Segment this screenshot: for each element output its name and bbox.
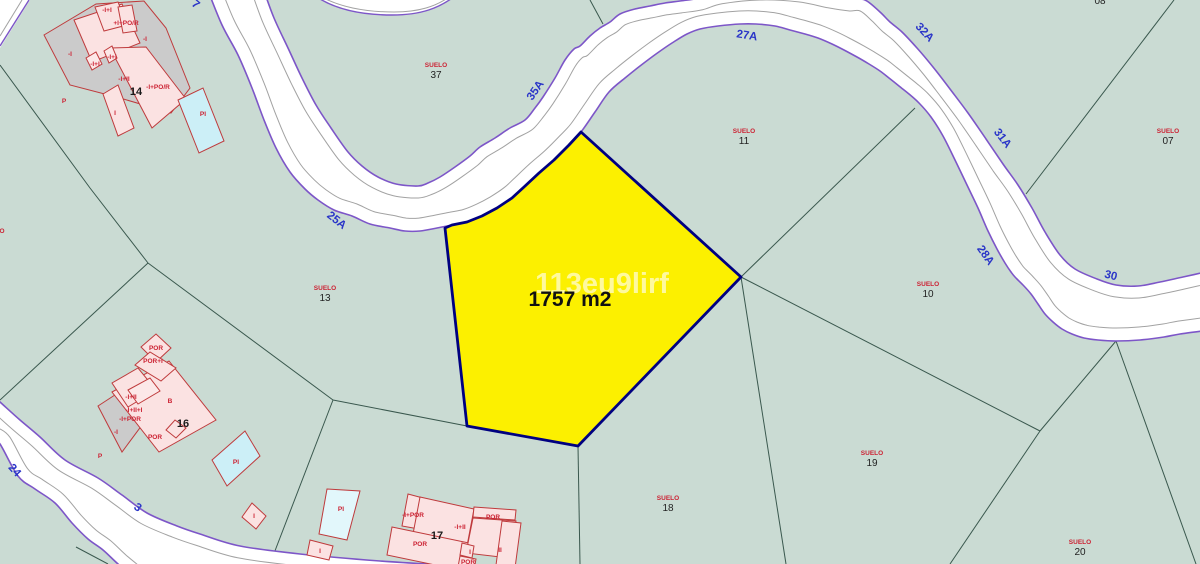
svg-text:1757 m2: 1757 m2 bbox=[529, 288, 612, 311]
svg-text:PI: PI bbox=[200, 111, 206, 118]
svg-text:-I+I: -I+I bbox=[102, 7, 112, 14]
svg-text:SUELO: SUELO bbox=[314, 285, 336, 292]
svg-text:POR: POR bbox=[461, 559, 475, 564]
svg-text:SUELO: SUELO bbox=[1157, 128, 1179, 135]
svg-text:POR: POR bbox=[486, 514, 500, 521]
svg-text:17: 17 bbox=[431, 530, 443, 542]
svg-text:SUELO: SUELO bbox=[861, 450, 883, 457]
svg-text:-I+I: -I+I bbox=[107, 54, 117, 61]
svg-text:POR: POR bbox=[149, 345, 163, 352]
svg-text:20: 20 bbox=[1074, 547, 1086, 558]
svg-text:-I: -I bbox=[143, 36, 147, 43]
svg-text:II: II bbox=[498, 547, 502, 554]
svg-text:37: 37 bbox=[430, 70, 442, 81]
svg-text:-I+II+I: -I+II+I bbox=[126, 407, 143, 414]
svg-text:I: I bbox=[114, 110, 116, 117]
svg-text:19: 19 bbox=[866, 458, 878, 469]
svg-text:PI: PI bbox=[338, 506, 344, 513]
svg-text:16: 16 bbox=[177, 418, 189, 430]
svg-text:08: 08 bbox=[1094, 0, 1106, 7]
svg-text:B: B bbox=[168, 398, 173, 405]
svg-text:P: P bbox=[62, 98, 67, 105]
svg-text:SUELO: SUELO bbox=[657, 495, 679, 502]
svg-text:07: 07 bbox=[1162, 136, 1174, 147]
svg-text:13: 13 bbox=[319, 293, 331, 304]
svg-text:POR+I: POR+I bbox=[143, 358, 163, 365]
svg-text:I: I bbox=[469, 549, 471, 556]
svg-text:-I: -I bbox=[68, 51, 72, 58]
svg-text:18: 18 bbox=[662, 503, 674, 514]
svg-text:I: I bbox=[319, 548, 321, 555]
svg-text:-I+POR: -I+POR bbox=[119, 416, 141, 423]
svg-text:11: 11 bbox=[739, 136, 750, 147]
svg-text:SUELO: SUELO bbox=[917, 281, 939, 288]
svg-text:POR: POR bbox=[148, 434, 162, 441]
svg-text:-I+II: -I+II bbox=[118, 76, 130, 83]
svg-text:POR: POR bbox=[413, 541, 427, 548]
svg-text:-I+II: -I+II bbox=[454, 524, 466, 531]
svg-text:-I+PO/R: -I+PO/R bbox=[146, 84, 170, 91]
svg-text:O: O bbox=[0, 228, 5, 235]
svg-text:-I: -I bbox=[114, 429, 118, 436]
svg-text:10: 10 bbox=[922, 289, 934, 300]
svg-text:PI: PI bbox=[233, 459, 239, 466]
svg-text:-I+I: -I+I bbox=[90, 61, 100, 68]
svg-text:-I+II: -I+II bbox=[125, 394, 137, 401]
svg-text:SUELO: SUELO bbox=[1069, 539, 1091, 546]
svg-text:14: 14 bbox=[130, 86, 143, 98]
svg-text:I: I bbox=[253, 513, 255, 520]
svg-text:SUELO: SUELO bbox=[733, 128, 755, 135]
svg-text:+I+PO/R: +I+PO/R bbox=[113, 20, 139, 27]
svg-text:P: P bbox=[98, 453, 103, 460]
svg-text:SUELO: SUELO bbox=[425, 62, 447, 69]
svg-text:-I+POR: -I+POR bbox=[402, 512, 424, 519]
